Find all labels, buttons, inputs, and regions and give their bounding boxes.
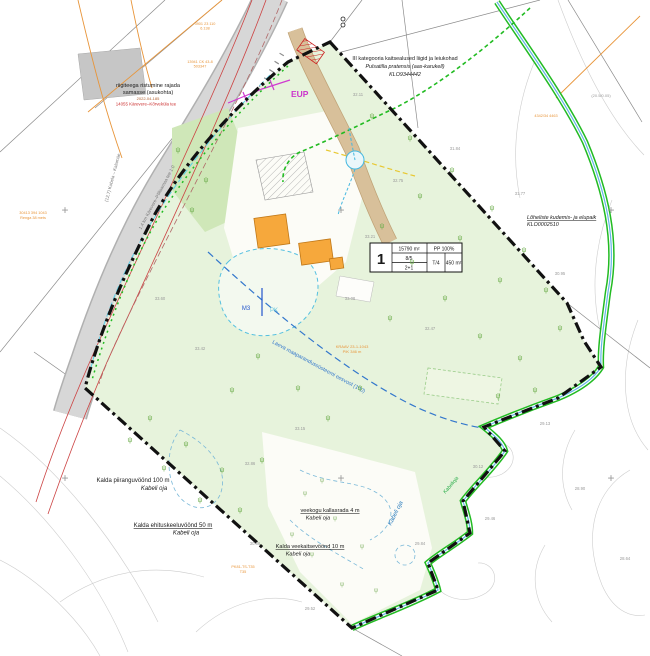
marsh-symbol: ψ [360,544,364,550]
tree-symbol: ψ [220,467,225,474]
tiny-topleft-label-1a: 3901 23 110 [195,22,216,26]
tree-symbol: ψ [380,223,385,230]
kallasrada-label-1: veekogu kallasrada 4 m [300,508,359,514]
elevation-label: 33.21 [365,234,376,239]
build-ban-50-label-2: Kabeli oja [173,531,200,537]
tree-symbol: ψ [326,415,331,422]
tree-symbol: ψ [358,385,363,392]
tree-symbol: ψ [490,205,495,212]
tree-symbol: ψ [230,387,235,394]
tree-symbol: ψ [176,147,181,154]
tiny-topleft-label-2b: 503347 [194,65,207,69]
tree-symbol: ψ [238,507,243,514]
kallasrada-label-2: Kabeli oja [306,516,331,522]
elevation-label: 32.86 [245,461,256,466]
tree-symbol: ψ [184,441,189,448]
tree-symbol: ψ [388,315,393,322]
elevation-label: 28.64 [620,556,631,561]
grid-cross: + [607,203,614,217]
tree-symbol: ψ [443,295,448,302]
elevation-label: 29.84 [415,541,426,546]
plot-coverage: PP 100% [434,247,455,253]
plot-building-area: 450 m² [446,261,462,267]
tree-symbol: ψ [296,385,301,392]
tree-symbol: ψ [190,207,195,214]
tree-symbol: ψ [498,277,503,284]
plot-units: 2+1 [405,266,414,272]
elevation-label: 30.88 [250,541,261,546]
elevation-label: 33.60 [155,296,166,301]
marsh-symbol: ψ [320,478,324,484]
salmonid-label-1: Lõheliste kudemis- ja elupaik [527,215,597,221]
building-3 [329,257,343,270]
tree-symbol: ψ [450,167,455,174]
tiny-left-label-b: Renga 38 mets [20,216,46,220]
eup-label: EUP [291,89,309,99]
kraav-label-2: PIK 346 m [343,349,362,354]
tree-symbol: ψ [518,355,523,362]
tree-symbol: ψ [558,325,563,332]
road-permit-label: 2022-04-185 [137,96,160,101]
elevation-label: 33.42 [195,346,206,351]
tree-symbol: ψ [162,465,167,472]
tiny-bottom-label-a: PK81-TS-T35 [231,565,254,569]
borehole-m3-label: M3 [242,306,251,312]
elevation-label: 29.52 [305,606,316,611]
grid-cross: + [337,203,344,217]
water-prot-10-label-1: Kalda veekaitsevöönd 10 m [276,544,345,550]
marsh-symbol: ψ [310,552,314,558]
salmonid-label-2: KLO0002510 [527,222,559,228]
tree-symbol: ψ [370,113,375,120]
grid-cross: + [337,471,344,485]
species-label-2: Pulsatilla pratensis (aas-karukell) [365,64,444,70]
elevation-label: 33.08 [345,296,356,301]
species-label-1: III kategooria kaitsealused liigid ja le… [352,56,457,62]
tree-symbol: ψ [478,333,483,340]
tiny-topleft-label-2a: 13941 CK 43-8 [187,60,213,64]
buffer-100-label-1: Kalda piiranguvöönd 100 m [96,478,169,484]
elevation-label: 28.90 [575,486,586,491]
plot-type: T/4 [432,261,439,267]
elevation-label: 29.13 [540,421,551,426]
species-label-3: KLO9344442 [389,72,421,78]
grid-cross: + [607,471,614,485]
marsh-symbol: ψ [303,491,307,497]
tree-symbol: ψ [544,287,549,294]
tree-symbol: ψ [256,353,261,360]
tree-symbol: ψ [496,393,501,400]
marsh-symbol: ψ [340,582,344,588]
marsh-symbol: ψ [333,516,337,522]
water-prot-10-label-2: Kabeli oja [286,552,311,558]
elevation-label: 30.95 [555,271,566,276]
tiny-right-orange-label: 4342/34 4463 [534,114,557,118]
grid-cross: + [61,471,68,485]
elevation-label: 32.47 [425,326,436,331]
marsh-symbol: ψ [290,532,294,538]
tree-symbol: ψ [410,259,415,266]
tree-symbol: ψ [522,247,527,254]
tiny-left-label-a: 30413 394 1043 [19,211,46,215]
site-plan-map: 1 15790 m² PP 100% 8/5 2+1 T/4 450 m² II… [0,0,650,656]
tree-symbol: ψ [458,235,463,242]
elevation-label: 32.11 [353,92,364,97]
elevation-label: 31.84 [450,146,461,151]
map-canvas: 1 15790 m² PP 100% 8/5 2+1 T/4 450 m² II… [0,0,650,656]
tree-symbol: ψ [260,457,265,464]
elevation-label: 32.75 [393,178,404,183]
tree-symbol: ψ [128,437,133,444]
tree-symbol: ψ [418,193,423,200]
tree-symbol: ψ [198,497,203,504]
borehole-pk-label: PK [270,308,278,314]
elevation-label: 29.46 [485,516,496,521]
road-name-red-label: 14055 Kärevere–Kõrveküla tee [116,102,177,107]
plot-number: 1 [377,251,385,268]
plot-info-box: 1 15790 m² PP 100% 8/5 2+1 T/4 450 m² [370,243,462,272]
marsh-symbol: ψ [374,588,378,594]
tree-symbol: ψ [204,177,209,184]
tree-symbol: ψ [533,387,538,394]
tiny-right-gray-label: (20.5/0.05) [591,93,611,98]
road-crossing-label-1: riigiteega ristumine rajada [116,83,181,89]
existing-yard-hatch [256,152,313,200]
elevation-label: 31.77 [515,191,526,196]
tiny-bottom-label-b: T35 [240,570,247,574]
elevation-label: 33.15 [295,426,306,431]
building-2 [299,239,334,265]
buffer-100-label-2: Kabeli oja [141,486,168,492]
build-ban-50-label-1: Kalda ehituskeeluvöönd 50 m [134,523,213,529]
tiny-topleft-label-1b: 6.138 [200,27,210,31]
plot-area: 15790 m² [398,247,419,253]
tree-symbol: ψ [408,135,413,142]
elevation-label: 30.12 [473,464,484,469]
building-1 [254,214,290,248]
tree-symbol: ψ [148,415,153,422]
grid-cross: + [61,203,68,217]
